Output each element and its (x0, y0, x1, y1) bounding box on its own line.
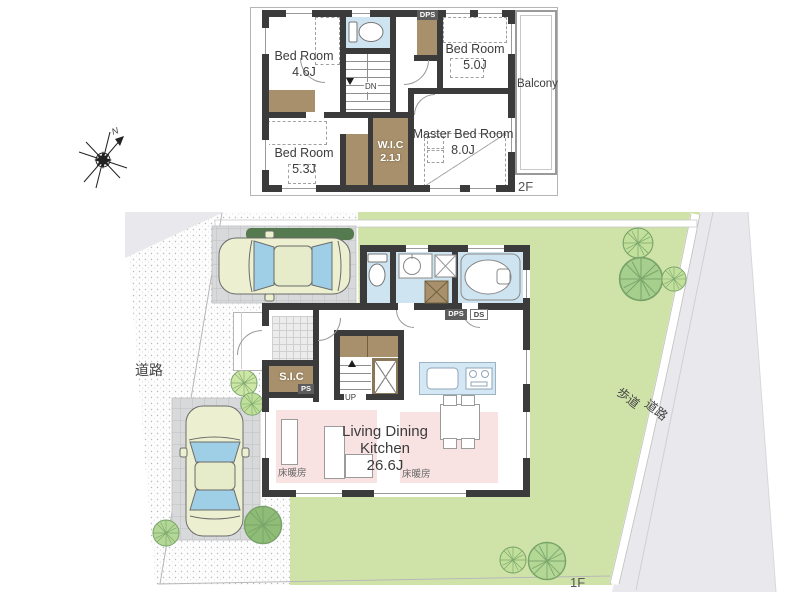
stairs-down-arrow (346, 78, 354, 85)
ldk-label: Living Dining Kitchen 26.6J (325, 423, 445, 474)
washer-pan-icon (435, 255, 456, 277)
floorplan-canvas: Bed Room 4.6J Bed Room 5.0J Bed Room 5.3… (0, 0, 800, 600)
window (296, 490, 342, 497)
balcony-label: Balcony (517, 77, 558, 91)
chair (443, 395, 457, 406)
ps-tag: PS (298, 384, 314, 394)
chair (461, 395, 475, 406)
chair (461, 438, 475, 449)
tv-board (281, 419, 298, 465)
room-size: 5.3J (265, 162, 343, 178)
window (470, 185, 496, 192)
room-size: 8.0J (404, 143, 522, 159)
wall (343, 48, 393, 54)
sink-icon (427, 368, 458, 389)
stair-closet (340, 336, 398, 357)
bathtub-icon (461, 254, 520, 300)
room-label-bedroom-5-3: Bed Room 5.3J (265, 146, 343, 177)
window (374, 490, 466, 497)
floor2-label: 2F (518, 179, 533, 195)
washbasin-icon (399, 254, 432, 278)
window (523, 350, 530, 384)
window (523, 412, 530, 458)
room-label-master-bedroom: Master Bed Room 8.0J (404, 127, 522, 158)
floor2-stair-divider (367, 54, 368, 100)
room-name: Master Bed Room (404, 127, 522, 143)
room-name: Bed Room (437, 42, 513, 58)
stove-icon (466, 368, 492, 389)
closet-x-box (372, 358, 399, 396)
room-size: 4.6J (265, 65, 343, 81)
stairs-up-label: UP (344, 393, 357, 403)
toilet-icon (348, 18, 388, 48)
window (352, 10, 370, 17)
wall (366, 394, 404, 400)
bed (267, 121, 327, 145)
floor2-closet (264, 90, 315, 112)
dps-tag-2f: DPS (417, 10, 438, 20)
room-name: Bed Room (265, 49, 343, 65)
window (478, 10, 502, 17)
room-name: Bed Room (265, 146, 343, 162)
tree-icon (500, 547, 526, 573)
dps-tag-1f: DPS (445, 309, 467, 320)
entrance-floor (272, 316, 314, 362)
wall (269, 360, 313, 366)
sic-label: S.I.C (269, 371, 314, 385)
wall (390, 10, 396, 117)
tree-icon (528, 542, 565, 579)
room-label-bedroom-4-6: Bed Room 4.6J (265, 49, 343, 80)
wall (334, 330, 340, 400)
window (282, 185, 316, 192)
tree-icon (153, 520, 179, 546)
stairs-up-arrow (348, 360, 356, 367)
wall (262, 112, 306, 118)
wall (398, 330, 404, 400)
window (286, 10, 312, 17)
tree-icon (241, 393, 263, 415)
road-left-label: 道路 (135, 362, 163, 380)
floor2-closet (346, 134, 369, 186)
closet-divider (367, 336, 368, 357)
bathroom-fixtures (360, 245, 530, 310)
window (262, 412, 269, 458)
window (430, 185, 460, 192)
ldk-line2: Kitchen (325, 440, 445, 457)
toilet-icon (368, 254, 387, 286)
tree-icon (662, 267, 686, 291)
floor1-label: 1F (570, 575, 585, 591)
tree-icon (623, 228, 653, 258)
floor-heating-label-right: 床暖房 (402, 469, 431, 481)
car-bottom (180, 406, 249, 536)
door-opening (262, 326, 269, 360)
stairs-down-label: DN (364, 82, 378, 92)
kitchen-fixtures (419, 362, 496, 395)
floor-heating-label-left: 床暖房 (278, 468, 307, 480)
room-label-wic: W.I.C 2.1J (371, 139, 410, 165)
ldk-line1: Living Dining (325, 423, 445, 440)
hatch-icon (425, 281, 448, 303)
tree-icon (620, 258, 663, 301)
car-top (219, 231, 350, 301)
ds-tag: DS (470, 309, 488, 320)
bed (443, 17, 507, 43)
tree-icon (231, 370, 257, 396)
tree-icon (244, 506, 281, 543)
room-label-bedroom-5-0: Bed Room 5.0J (437, 42, 513, 73)
wall (408, 88, 508, 94)
room-name: W.I.C (371, 139, 410, 152)
room-size: 5.0J (437, 58, 513, 74)
wall (262, 303, 367, 310)
wall (334, 330, 404, 336)
chair (443, 438, 457, 449)
room-size: 2.1J (371, 152, 410, 165)
window (446, 10, 470, 17)
dining-table (440, 404, 480, 440)
compass-icon (79, 132, 127, 188)
